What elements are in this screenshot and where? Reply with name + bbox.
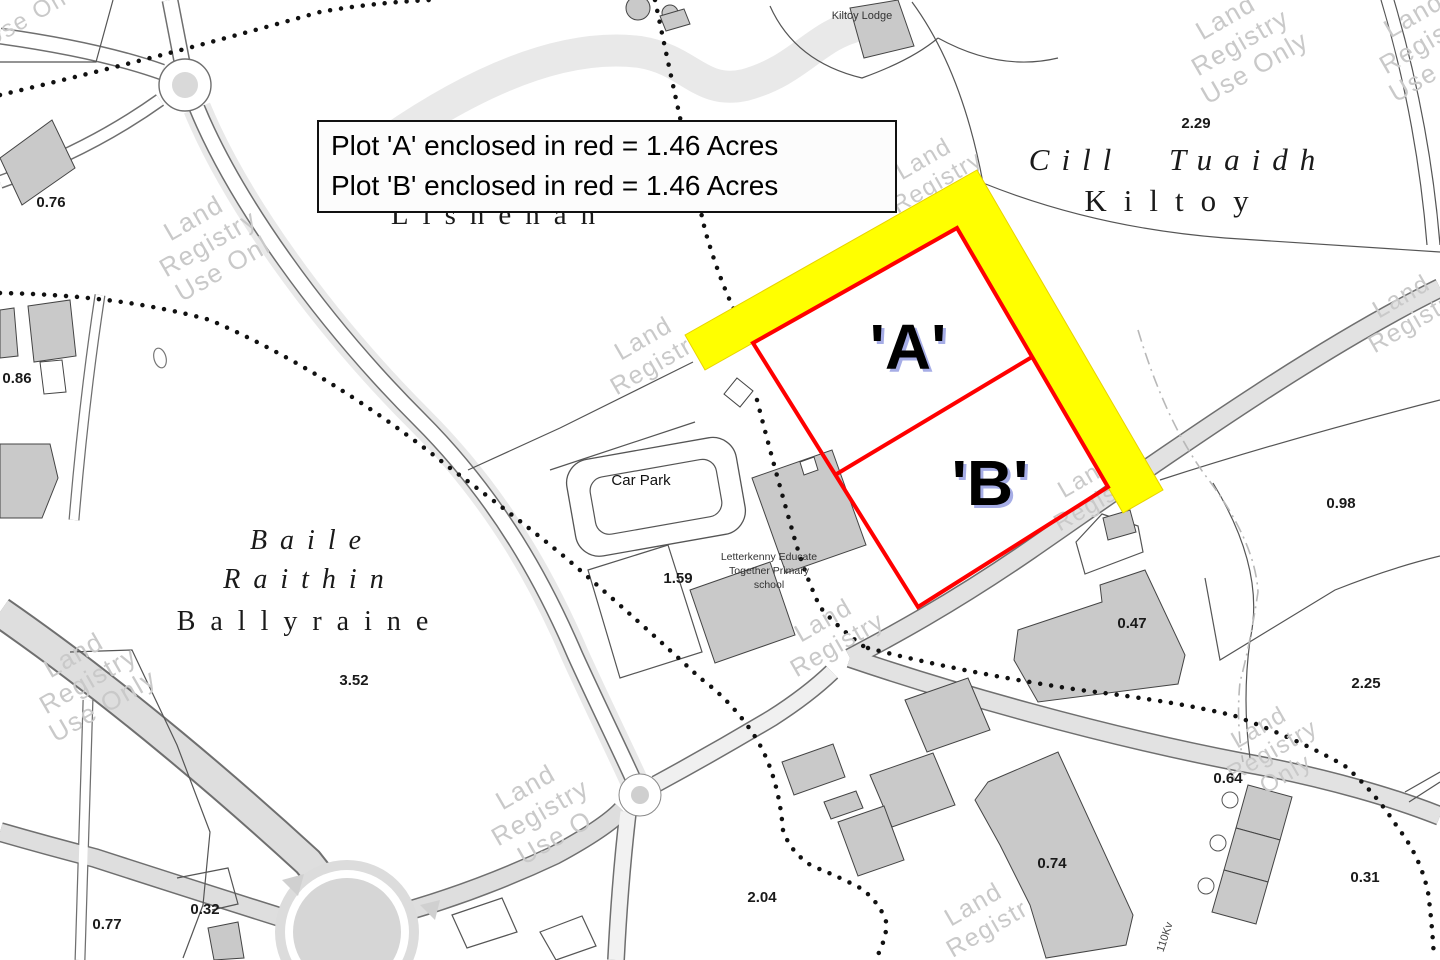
townland-name: Ballyraine (177, 606, 444, 637)
acreage-label: 0.31 (1350, 869, 1379, 886)
acreage-label: 0.32 (190, 901, 219, 918)
poi-label: Together Primary (729, 565, 810, 577)
acreage-label: 2.04 (747, 889, 777, 906)
legend-line-plot-a: Plot 'A' enclosed in red = 1.46 Acres (331, 126, 895, 166)
acreage-label: 0.74 (1037, 855, 1067, 872)
acreage-label: 1.59 (663, 570, 692, 587)
plot-a-label: 'A' (870, 311, 947, 383)
poi-label: Kiltoy Lodge (832, 10, 893, 22)
legend-box: Plot 'A' enclosed in red = 1.46 Acres Pl… (317, 120, 897, 213)
kiltoy-lodge-building (850, 0, 914, 58)
car-park (563, 434, 749, 560)
acreage-label: 0.77 (92, 916, 121, 933)
plot-highlight (685, 170, 1163, 607)
acreage-label: 2.29 (1181, 115, 1210, 132)
poi-label: 110Kv (1155, 920, 1176, 953)
acreage-label: 0.64 (1213, 770, 1243, 787)
land-registry-map: Use OnLandRegistryUse OnlLandRegistryLan… (0, 0, 1440, 960)
acreage-label: 2.25 (1351, 675, 1380, 692)
legend-line-plot-b: Plot 'B' enclosed in red = 1.46 Acres (331, 166, 895, 206)
plot-b-label: 'B' (952, 447, 1029, 519)
acreage-label: 3.52 (339, 672, 368, 689)
roundabout-top-left (159, 59, 211, 111)
acreage-label: 0.86 (2, 370, 31, 387)
acreage-label: 0.47 (1117, 615, 1146, 632)
poi-label: Letterkenny Educate (721, 551, 817, 563)
poi-label: Car Park (611, 472, 671, 489)
townland-name: Raithin (222, 564, 396, 595)
poi-label: school (754, 579, 784, 591)
townland-name: Cill Tuaidh (1029, 142, 1327, 177)
small-outbuilding (724, 378, 753, 407)
acreage-label: 0.76 (36, 194, 65, 211)
townland-name: Kiltoy (1084, 183, 1265, 218)
plot-letters: 'A' 'A' 'B' 'B' (870, 311, 1032, 522)
roundabout-mini (619, 774, 661, 816)
townland-name: Baile (250, 525, 374, 556)
acreage-label: 0.98 (1326, 495, 1355, 512)
